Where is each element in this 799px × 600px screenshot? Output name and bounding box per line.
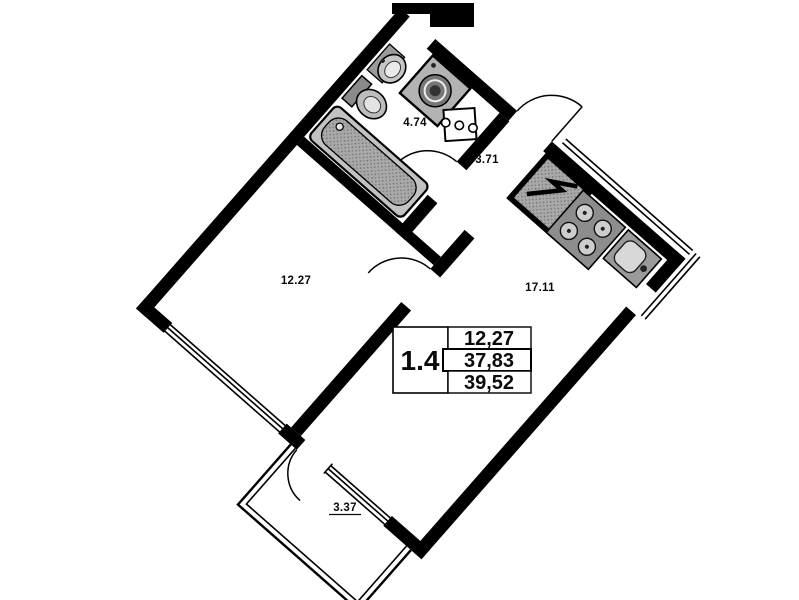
room-label-bathroom: 4.74 — [403, 117, 427, 129]
total-area-value: 39,52 — [464, 372, 514, 394]
background — [0, 0, 799, 600]
room-label-hallway: 3.71 — [475, 154, 499, 166]
living-area-value: 12,27 — [464, 328, 514, 350]
room-label-bedroom: 12.27 — [281, 275, 311, 287]
room-label-balcony: 3.37 — [333, 502, 357, 514]
floorplan-canvas: 4.74 3.71 12.27 17.11 3.37 1.4 12,27 37,… — [0, 0, 799, 600]
summary-table: 1.4 12,27 37,83 39,52 — [393, 327, 531, 394]
room-label-kitchen-living: 17.11 — [525, 282, 555, 294]
unit-type-label: 1.4 — [401, 345, 440, 376]
apartment-area-value: 37,83 — [464, 350, 514, 372]
floorplan-svg: 4.74 3.71 12.27 17.11 3.37 1.4 12,27 37,… — [0, 0, 799, 600]
